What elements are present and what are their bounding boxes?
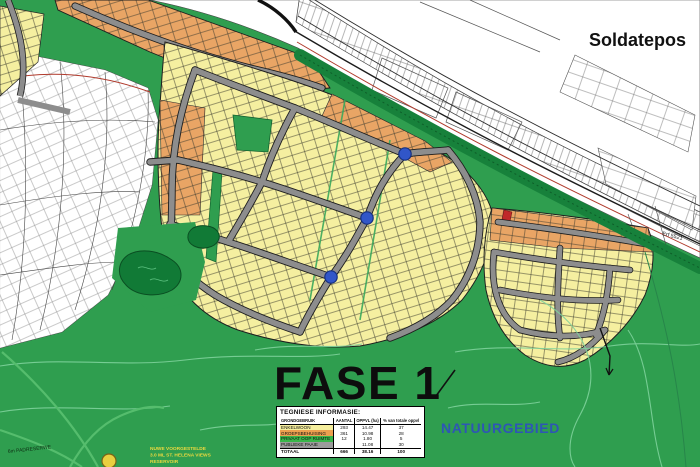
landuse-label: GROEPSBEHUISING	[280, 430, 334, 436]
table-total-row: TOTAAL 666 38.16 100	[280, 448, 421, 454]
land-use-table: GRONDGEBRUIK AANTAL OPPVL (ha) % van tot…	[280, 418, 421, 455]
traffic-circle	[325, 271, 337, 283]
technical-info-panel: TEGNIESE INFORMASIE: GRONDGEBRUIK AANTAL…	[276, 406, 425, 458]
total-label: TOTAAL	[280, 448, 334, 454]
total-count: 666	[334, 448, 354, 454]
open-space-plot	[233, 115, 272, 152]
nature-area-label: NATUURGEBIED	[441, 420, 560, 436]
map-canvas: Soldatepos FASE 1 NATUURGEBIED Erf 5521 …	[0, 0, 700, 467]
traffic-circle	[399, 148, 411, 160]
reservoir-marker	[102, 454, 116, 467]
reservoir-label-line3: RESERVOIR	[150, 459, 179, 465]
phase-label: FASE 1	[274, 357, 442, 409]
site-development-plan: Soldatepos FASE 1 NATUURGEBIED Erf 5521 …	[0, 0, 700, 467]
reservoir-label-line1: NUWE VOORGESTELDE	[150, 446, 207, 452]
landuse-label: PRIVAAT OOP RUIMTE	[280, 436, 334, 442]
total-percent: 100	[381, 448, 421, 454]
table-title: TEGNIESE INFORMASIE:	[280, 409, 421, 416]
pond-small	[188, 226, 219, 248]
traffic-circle	[361, 212, 373, 224]
reservoir-label-line2: 3.0 ML ST. HELENA VIEWS	[150, 453, 212, 459]
region-title: Soldatepos	[589, 30, 686, 50]
total-area: 38.16	[354, 448, 381, 454]
